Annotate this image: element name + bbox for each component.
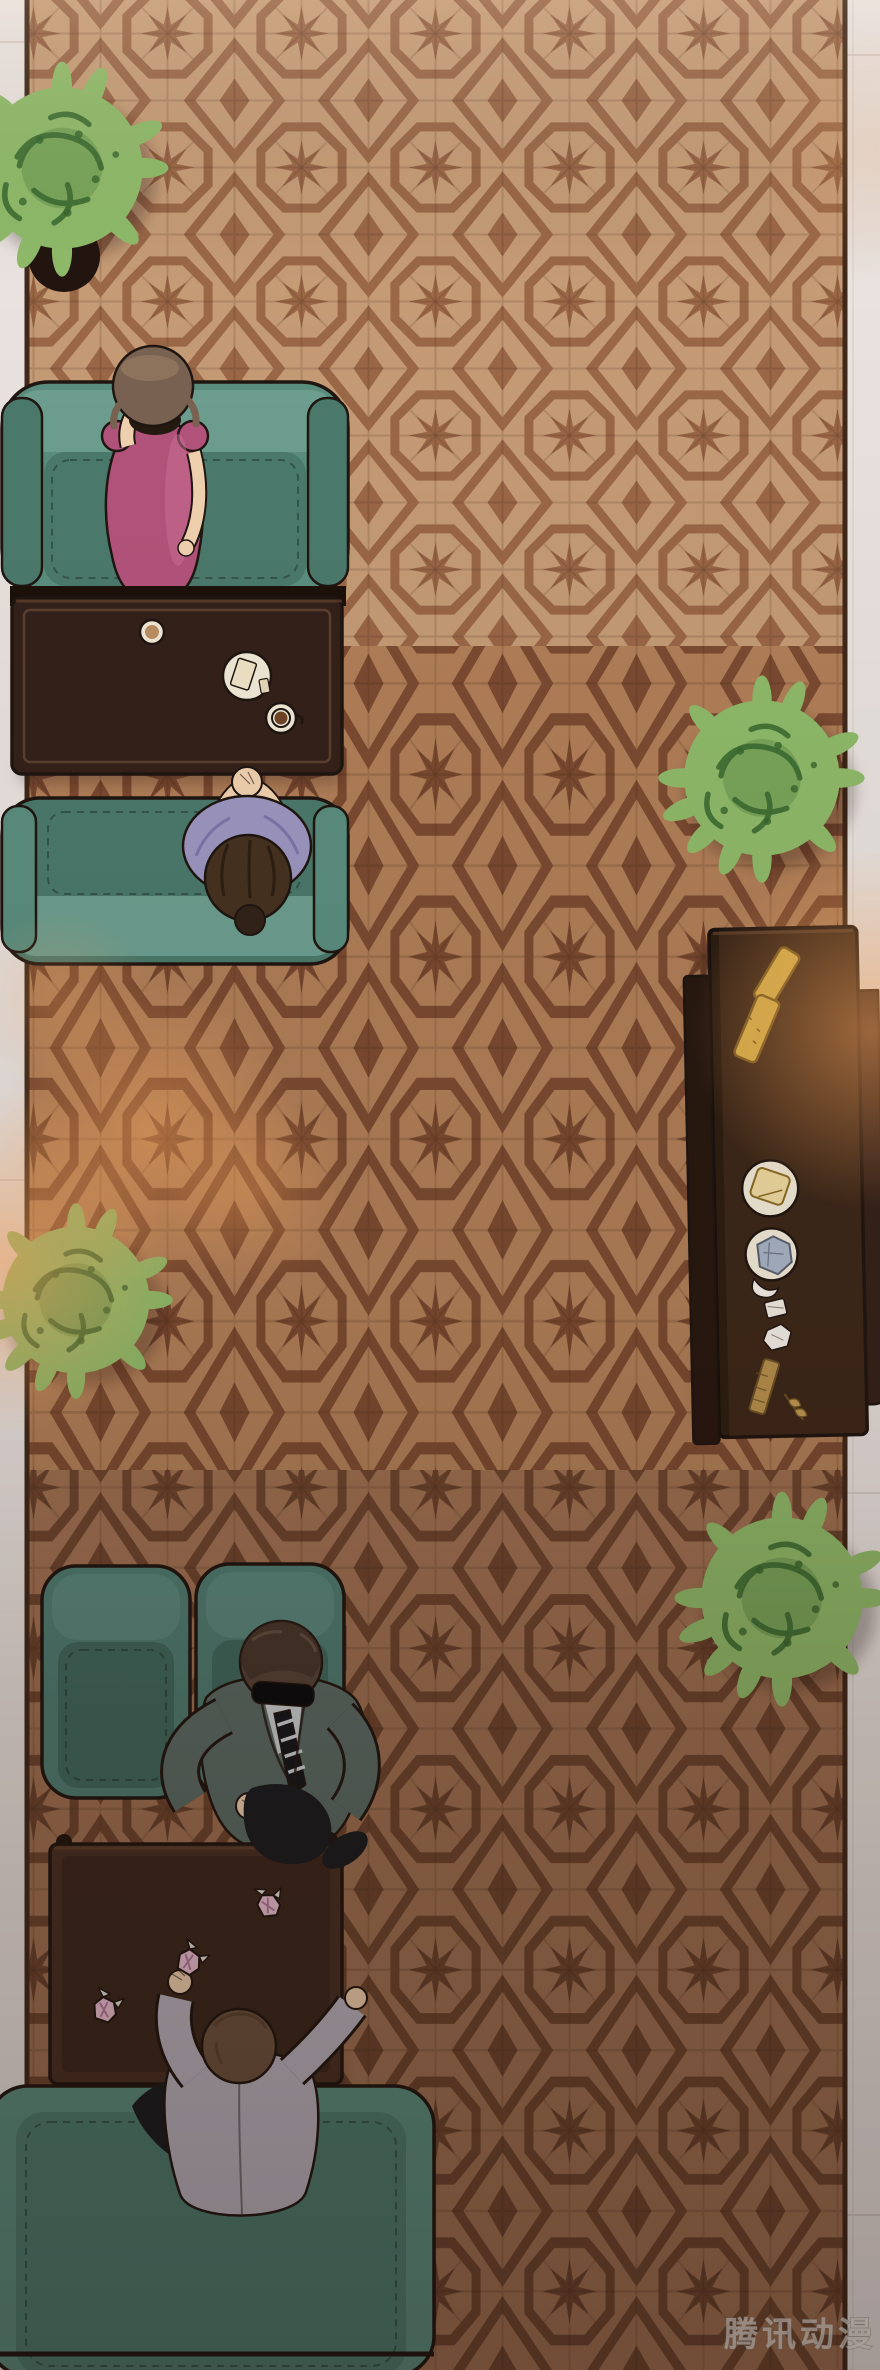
watermark-text: 腾讯动漫 <box>724 2315 876 2355</box>
watermark: 腾讯动漫 <box>724 2315 876 2355</box>
illustration-canvas: 腾讯动漫 <box>0 0 880 2370</box>
vignette <box>0 0 880 2370</box>
lounge-illustration: 腾讯动漫 <box>0 0 880 2370</box>
